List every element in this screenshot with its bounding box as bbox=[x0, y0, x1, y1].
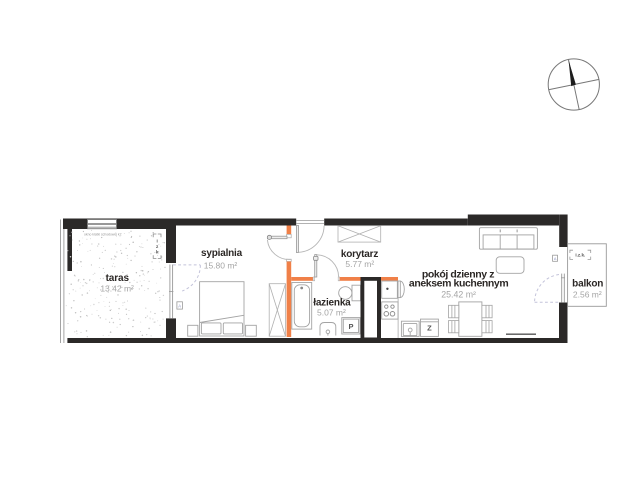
svg-text:sypialnia: sypialnia bbox=[201, 248, 243, 259]
svg-text:A: A bbox=[178, 304, 181, 309]
svg-text:Z: Z bbox=[427, 323, 432, 332]
svg-text:5.77 m²: 5.77 m² bbox=[345, 259, 374, 269]
svg-text:aneksem kuchennym: aneksem kuchennym bbox=[409, 278, 508, 290]
svg-text:P: P bbox=[348, 322, 353, 331]
svg-text:5.07 m²: 5.07 m² bbox=[317, 308, 346, 318]
svg-text:25.42 m²: 25.42 m² bbox=[441, 289, 476, 299]
svg-text:2.56 m²: 2.56 m² bbox=[573, 290, 602, 300]
svg-text:15.80 m²: 15.80 m² bbox=[204, 261, 238, 271]
svg-text:balkon: balkon bbox=[572, 278, 603, 289]
svg-text:i: i bbox=[157, 239, 158, 244]
svg-text:k: k bbox=[156, 250, 159, 255]
svg-text:taras: taras bbox=[106, 273, 130, 284]
svg-text:13.42 m²: 13.42 m² bbox=[100, 284, 134, 294]
svg-text:i.z.k.: i.z.k. bbox=[575, 253, 585, 258]
